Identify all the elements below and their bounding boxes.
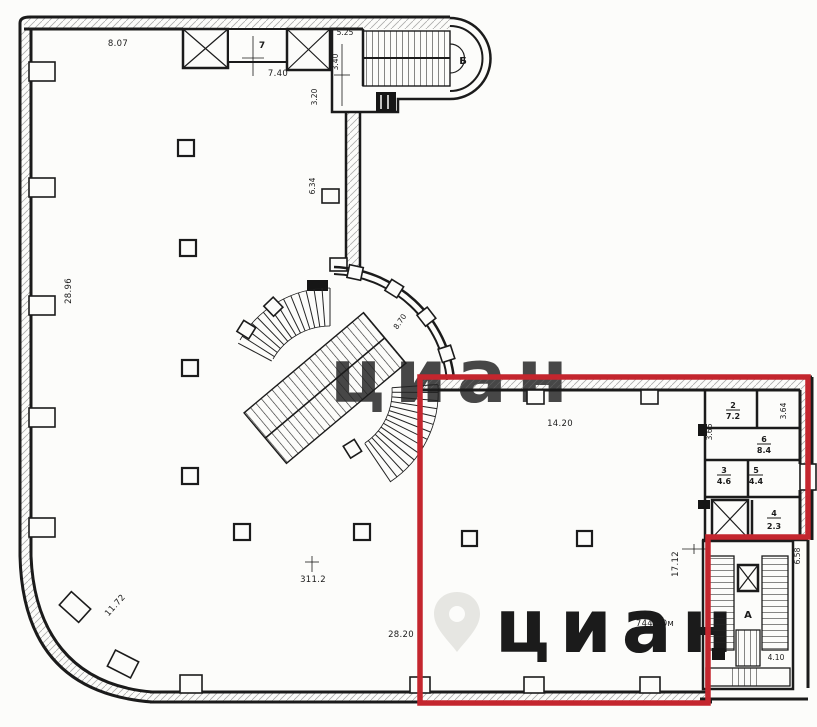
room-3-label: 3 4.6 (717, 466, 732, 486)
svg-text:3: 3 (721, 466, 727, 475)
svg-text:2.3: 2.3 (767, 522, 781, 531)
room-7-number: 7 (259, 41, 265, 51)
stairwell-b-letter: Б (459, 56, 467, 67)
room-2-label: 2 7.2 (726, 401, 740, 421)
shaft-dark-box (376, 92, 396, 112)
area-total-label: 744.50м (636, 619, 674, 629)
svg-text:8.4: 8.4 (757, 446, 772, 455)
dim-stairwell-left: 17.12 (671, 551, 681, 577)
svg-text:7.2: 7.2 (726, 412, 740, 421)
svg-text:4.4: 4.4 (749, 477, 764, 486)
dim-bottom-wall: 28.20 (388, 630, 414, 640)
dim-vestibule-top: 5.25 (337, 28, 354, 37)
dim-partition-right: 3.64 (779, 402, 788, 419)
dim-stairwell-right: 6.58 (793, 547, 802, 564)
floorplan-viewport: циан циан (0, 0, 817, 727)
dim-room7: 7.40 (268, 69, 288, 79)
dim-left-wall: 28.96 (64, 278, 74, 304)
room-4-label: 4 2.3 (767, 509, 781, 531)
dim-passage: 6.34 (308, 177, 317, 194)
area-hall-label: 311.2 (300, 575, 326, 585)
stairwell-a-letter: А (744, 610, 752, 621)
left-wall-pilasters (29, 62, 55, 537)
svg-text:5: 5 (753, 466, 759, 475)
svg-text:4.6: 4.6 (717, 477, 732, 486)
dim-curved-wall: 11.72 (103, 593, 128, 619)
svg-text:2: 2 (730, 401, 736, 410)
dimension-ticks (305, 556, 319, 572)
dim-stairwell-bottom: 4.10 (768, 653, 785, 662)
dim-vestibule-mid: 3.40 (331, 53, 340, 70)
dim-arc-stair: 8.70 (391, 312, 408, 331)
room-7-outline (228, 29, 287, 62)
map-pin-icon (434, 592, 480, 652)
elevator-room-block (183, 29, 330, 76)
dim-hall-top: 14.20 (547, 419, 573, 429)
room-6-label: 6 8.4 (757, 435, 772, 455)
room-5-label: 5 4.4 (749, 466, 764, 486)
svg-text:4: 4 (771, 509, 777, 518)
dim-vestibule-low: 3.20 (310, 88, 319, 105)
dim-top-left: 8.07 (108, 39, 128, 49)
floorplan-drawing: циан циан (0, 0, 817, 727)
svg-text:6: 6 (761, 435, 767, 444)
curved-stair-upper (238, 288, 330, 361)
dim-partition-left: 3.66 (705, 423, 714, 440)
